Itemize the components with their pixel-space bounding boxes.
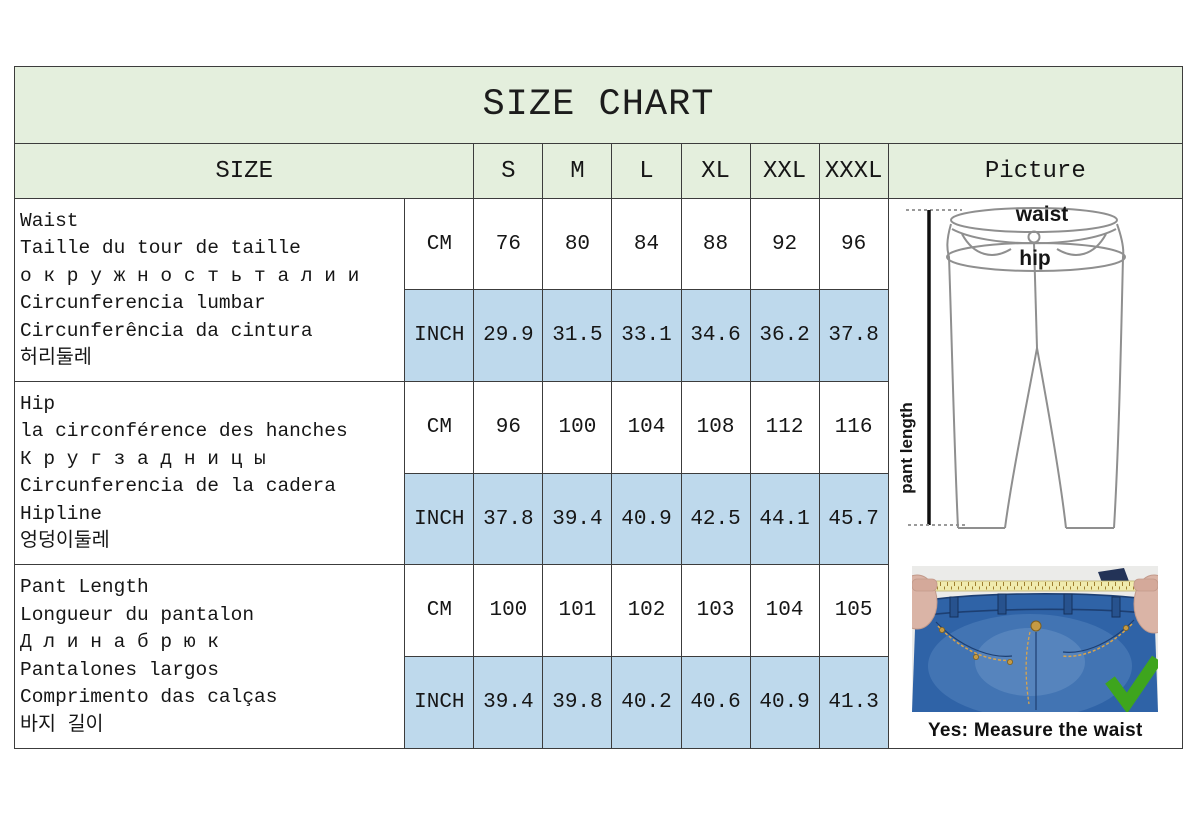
pant-cm-xxxl: 105 <box>819 565 888 657</box>
waist-cm-xxl: 92 <box>750 199 819 290</box>
size-chart-table: SIZE CHART SIZE S M L XL XXL XXXL Pictur… <box>14 66 1183 749</box>
pant-inch-xxxl: 41.3 <box>819 657 888 749</box>
pant-cm-xxl: 104 <box>750 565 819 657</box>
waist-label: waist <box>1015 203 1069 226</box>
waist-inch-l: 33.1 <box>612 290 681 382</box>
hip-inch-s: 37.8 <box>474 474 543 565</box>
measure-waist-photo <box>912 566 1158 712</box>
size-chart: SIZE CHART SIZE S M L XL XXL XXXL Pictur… <box>14 66 1183 749</box>
header-row: SIZE S M L XL XXL XXXL Picture <box>15 144 1183 199</box>
hip-inch-xxl: 44.1 <box>750 474 819 565</box>
hip-inch-unit: INCH <box>405 474 474 565</box>
hip-cm-xxl: 112 <box>750 382 819 474</box>
label-line: Waist <box>20 208 402 236</box>
waist-cm-unit: CM <box>405 199 474 290</box>
waist-inch-xxl: 36.2 <box>750 290 819 382</box>
pant-inch-xxl: 40.9 <box>750 657 819 749</box>
col-header-l: L <box>612 144 681 199</box>
label-line: Pant Length <box>20 574 402 602</box>
pant-inch-unit: INCH <box>405 657 474 749</box>
table-row-waist-cm: Waist Taille du tour de taille о к р у ж… <box>15 199 1183 290</box>
waist-cm-l: 84 <box>612 199 681 290</box>
left-inner-seam <box>1005 348 1037 528</box>
hip-cm-xxxl: 116 <box>819 382 888 474</box>
pant-inch-xl: 40.6 <box>681 657 750 749</box>
hip-inch-xl: 42.5 <box>681 474 750 565</box>
pant-cm-unit: CM <box>405 565 474 657</box>
waist-cm-m: 80 <box>543 199 612 290</box>
label-line: Taille du tour de taille <box>20 235 402 263</box>
col-header-s: S <box>474 144 543 199</box>
pant-length-label: pant length <box>897 402 916 494</box>
label-line: 허리둘레 <box>20 345 402 373</box>
col-header-m: M <box>543 144 612 199</box>
label-line: Hipline <box>20 501 402 529</box>
label-line: о к р у ж н о с т ь т а л и и <box>20 263 402 291</box>
pant-inch-s: 39.4 <box>474 657 543 749</box>
waist-inch-xxxl: 37.8 <box>819 290 888 382</box>
hip-inch-xxxl: 45.7 <box>819 474 888 565</box>
hip-cm-s: 96 <box>474 382 543 474</box>
right-inner-seam <box>1037 348 1066 528</box>
col-header-xxxl: XXXL <box>819 144 888 199</box>
title-row: SIZE CHART <box>15 67 1183 144</box>
hip-cm-unit: CM <box>405 382 474 474</box>
label-line: Circunferência da cintura <box>20 318 402 346</box>
hip-cm-xl: 108 <box>681 382 750 474</box>
waist-button <box>1029 232 1040 243</box>
hip-inch-m: 39.4 <box>543 474 612 565</box>
pant-inch-l: 40.2 <box>612 657 681 749</box>
label-line: Д л и н а б р ю к <box>20 629 402 657</box>
hip-cm-l: 104 <box>612 382 681 474</box>
picture-cell: waist hip pant length <box>888 199 1182 749</box>
waist-inch-s: 29.9 <box>474 290 543 382</box>
waist-inch-unit: INCH <box>405 290 474 382</box>
label-line: Longueur du pantalon <box>20 602 402 630</box>
jeans-button <box>1031 621 1041 631</box>
pant-inch-m: 39.8 <box>543 657 612 749</box>
label-line: Circunferencia lumbar <box>20 290 402 318</box>
label-line: Comprimento das calças <box>20 684 402 712</box>
right-outer-seam <box>1114 224 1123 528</box>
pant-cm-m: 101 <box>543 565 612 657</box>
row-label-hip: Hip la circonférence des hanches К р у г… <box>15 382 405 565</box>
waist-cm-xxxl: 96 <box>819 199 888 290</box>
pants-measurement-diagram: waist hip pant length <box>892 203 1178 560</box>
waist-inch-xl: 34.6 <box>681 290 750 382</box>
hip-label: hip <box>1020 247 1052 270</box>
label-line: Hip <box>20 391 402 419</box>
label-line: Circunferencia de la cadera <box>20 473 402 501</box>
label-line: 엉덩이둘레 <box>20 528 402 556</box>
page-title: SIZE CHART <box>15 67 1183 144</box>
measuring-tape <box>924 581 1146 591</box>
label-line: 바지 길이 <box>20 712 402 740</box>
row-label-waist: Waist Taille du tour de taille о к р у ж… <box>15 199 405 382</box>
label-line: la circonférence des hanches <box>20 418 402 446</box>
waist-inch-m: 31.5 <box>543 290 612 382</box>
hip-inch-l: 40.9 <box>612 474 681 565</box>
hip-cm-m: 100 <box>543 382 612 474</box>
label-line: Pantalones largos <box>20 657 402 685</box>
col-header-xxl: XXL <box>750 144 819 199</box>
pant-cm-s: 100 <box>474 565 543 657</box>
waist-cm-xl: 88 <box>681 199 750 290</box>
col-header-xl: XL <box>681 144 750 199</box>
left-outer-seam <box>948 224 959 528</box>
col-header-size: SIZE <box>15 144 474 199</box>
row-label-pant-length: Pant Length Longueur du pantalon Д л и н… <box>15 565 405 749</box>
label-line: К р у г з а д н и ц ы <box>20 446 402 474</box>
col-header-picture: Picture <box>888 144 1182 199</box>
pant-cm-l: 102 <box>612 565 681 657</box>
photo-caption: Yes: Measure the waist <box>889 720 1182 742</box>
waist-cm-s: 76 <box>474 199 543 290</box>
pant-cm-xl: 103 <box>681 565 750 657</box>
